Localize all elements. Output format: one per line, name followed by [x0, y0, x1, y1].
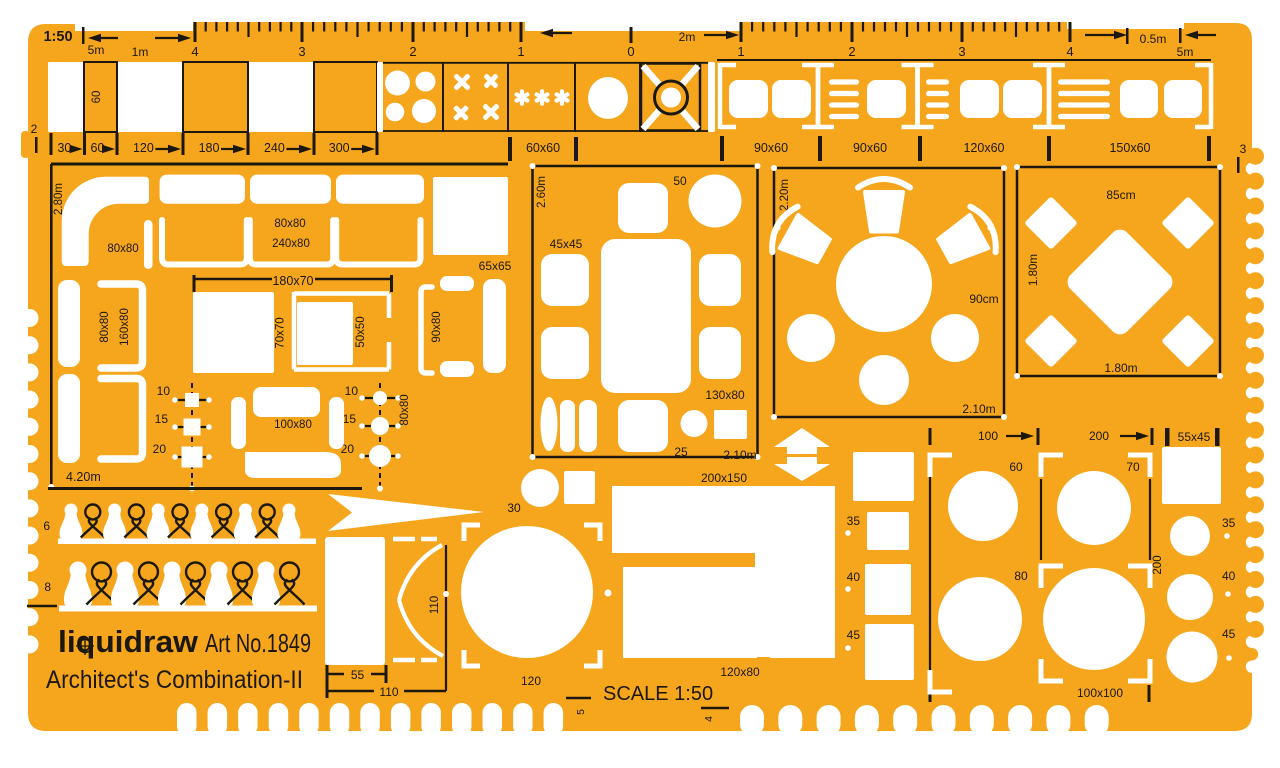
svg-text:10: 10	[345, 384, 359, 398]
svg-text:35: 35	[847, 514, 861, 528]
svg-text:240x80: 240x80	[272, 238, 310, 250]
svg-text:70: 70	[1126, 460, 1140, 474]
svg-text:1.80m: 1.80m	[1104, 361, 1137, 375]
svg-text:80: 80	[1014, 569, 1028, 583]
svg-text:160x80: 160x80	[119, 308, 131, 346]
svg-text:55x45: 55x45	[1178, 430, 1211, 444]
svg-text:2: 2	[409, 44, 416, 59]
svg-text:100x100: 100x100	[1077, 686, 1123, 700]
svg-text:15: 15	[343, 412, 357, 426]
svg-text:4: 4	[1066, 44, 1073, 59]
svg-text:60: 60	[1009, 460, 1023, 474]
svg-text:4: 4	[191, 44, 198, 59]
svg-text:110: 110	[379, 685, 398, 699]
svg-text:110: 110	[429, 596, 441, 614]
svg-text:10: 10	[157, 384, 171, 398]
svg-text:90x60: 90x60	[853, 141, 887, 155]
svg-text:45x45: 45x45	[550, 237, 583, 251]
svg-text:6: 6	[43, 519, 50, 533]
svg-text:120x60: 120x60	[963, 141, 1004, 155]
svg-text:5m: 5m	[88, 43, 105, 57]
svg-text:25: 25	[674, 445, 688, 459]
svg-text:2m: 2m	[679, 30, 696, 44]
svg-text:120: 120	[521, 674, 541, 688]
svg-text:2.10m: 2.10m	[723, 448, 756, 462]
svg-text:50: 50	[673, 174, 687, 188]
svg-text:15: 15	[155, 412, 169, 426]
svg-text:120: 120	[133, 141, 154, 155]
svg-text:45: 45	[1222, 627, 1236, 641]
svg-text:1.80m: 1.80m	[1028, 254, 1040, 286]
svg-text:5: 5	[575, 709, 587, 715]
svg-text:30: 30	[507, 501, 521, 515]
svg-text:8: 8	[44, 580, 51, 594]
svg-text:1:50: 1:50	[43, 29, 72, 45]
svg-text:0.5m: 0.5m	[1140, 32, 1167, 46]
svg-text:200: 200	[1089, 429, 1109, 443]
svg-text:90cm: 90cm	[969, 292, 998, 306]
svg-text:50x50: 50x50	[355, 316, 367, 347]
svg-text:Art No.1849: Art No.1849	[205, 628, 311, 658]
svg-text:4: 4	[703, 716, 715, 722]
svg-text:85cm: 85cm	[1106, 188, 1135, 202]
svg-text:30: 30	[57, 141, 71, 155]
svg-text:2: 2	[848, 44, 855, 59]
svg-text:2: 2	[31, 122, 38, 136]
svg-text:55: 55	[351, 668, 365, 682]
svg-text:80x80: 80x80	[107, 243, 138, 255]
svg-text:3: 3	[958, 44, 965, 59]
svg-text:60: 60	[91, 91, 103, 104]
svg-text:80x80: 80x80	[274, 218, 305, 230]
svg-text:0: 0	[627, 44, 634, 59]
svg-text:4.20m: 4.20m	[66, 470, 101, 484]
svg-text:Architect's Combination-II: Architect's Combination-II	[46, 666, 303, 694]
svg-text:2.20m: 2.20m	[779, 179, 791, 211]
svg-text:40: 40	[847, 570, 861, 584]
svg-text:45: 45	[847, 628, 861, 642]
svg-text:1: 1	[517, 44, 524, 59]
svg-text:300: 300	[329, 141, 350, 155]
svg-text:90x80: 90x80	[431, 311, 443, 342]
svg-text:3: 3	[298, 44, 305, 59]
svg-text:100: 100	[978, 429, 998, 443]
svg-text:150x60: 150x60	[1109, 141, 1150, 155]
svg-text:2.60m: 2.60m	[536, 176, 548, 208]
svg-text:35: 35	[1222, 516, 1236, 530]
svg-text:40: 40	[1222, 569, 1236, 583]
svg-text:240: 240	[264, 141, 285, 155]
svg-text:60x60: 60x60	[526, 141, 560, 155]
svg-text:1: 1	[737, 44, 744, 59]
svg-text:3: 3	[1240, 142, 1247, 156]
svg-text:90x60: 90x60	[754, 141, 788, 155]
svg-text:180x70: 180x70	[272, 274, 313, 288]
svg-text:20: 20	[153, 442, 167, 456]
svg-text:SCALE 1:50: SCALE 1:50	[603, 683, 713, 705]
svg-text:130x80: 130x80	[705, 388, 745, 402]
svg-text:80x80: 80x80	[99, 311, 111, 342]
svg-text:100x80: 100x80	[274, 419, 312, 431]
svg-text:80x80: 80x80	[399, 394, 411, 425]
svg-text:1m: 1m	[132, 45, 149, 59]
svg-text:200: 200	[1152, 555, 1164, 574]
svg-text:180: 180	[199, 141, 220, 155]
svg-text:65x65: 65x65	[479, 259, 512, 273]
svg-text:2.10m: 2.10m	[962, 402, 995, 416]
svg-text:120x80: 120x80	[720, 665, 760, 679]
svg-text:liquidraw: liquidraw	[58, 624, 199, 659]
svg-text:5m: 5m	[1177, 45, 1194, 59]
svg-text:70x70: 70x70	[275, 317, 287, 348]
svg-text:200x150: 200x150	[701, 471, 747, 485]
